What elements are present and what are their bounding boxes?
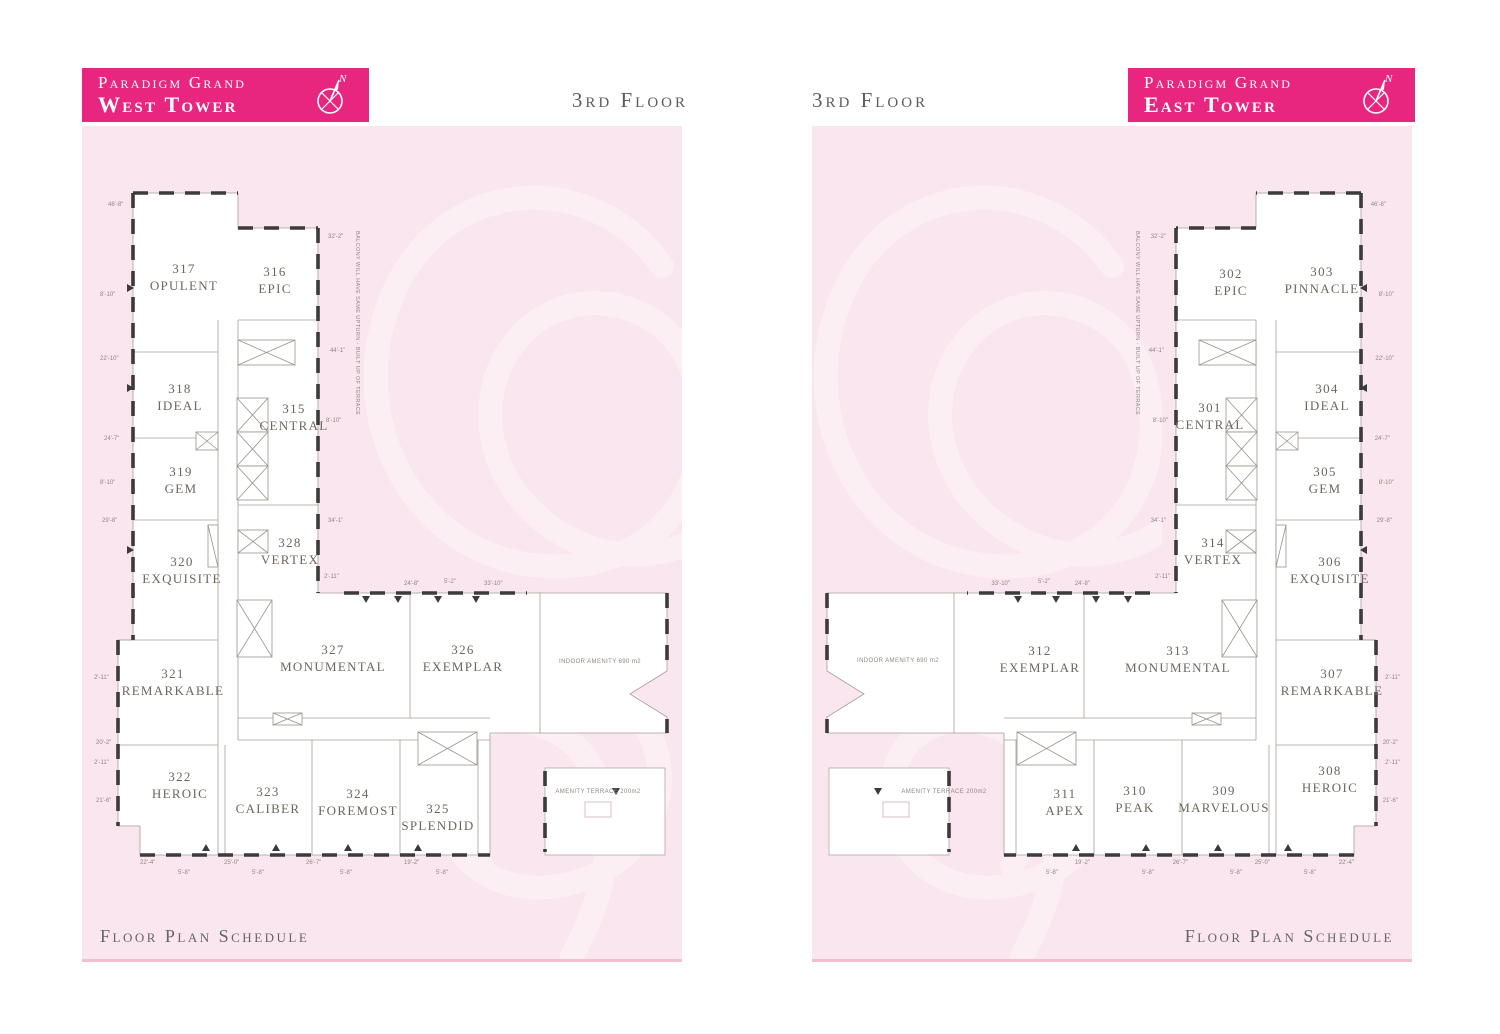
amenity-terrace-label: AMENITY TERRACE 200m2 — [901, 789, 986, 795]
dimension-label: 24'-8" — [1075, 581, 1090, 587]
compass-north-icon: N — [311, 71, 353, 119]
unit-label-303: 303PINNACLE — [1285, 264, 1360, 298]
dimension-label: 21'-6" — [96, 798, 111, 804]
unit-label-314: 314VERTEX — [1184, 535, 1242, 569]
dimension-label: 20'-2" — [96, 740, 111, 746]
east-tower-title: East Tower — [1144, 92, 1292, 117]
floor-label-west: 3rd Floor — [498, 88, 688, 113]
dimension-label: 19'-2" — [1075, 860, 1090, 866]
compass-north-icon: N — [1357, 71, 1399, 119]
balcony-note: BALCONY WILL HAVE SAME UPTURN - BUILT UP… — [1134, 231, 1140, 415]
floor-label-east: 3rd Floor — [812, 88, 1002, 113]
east-tower-header: Paradigm Grand East Tower N — [1128, 68, 1415, 122]
dimension-label: 25'-0" — [224, 860, 239, 866]
unit-label-327: 327MONUMENTAL — [280, 642, 386, 676]
dimension-label: 21'-6" — [1383, 798, 1398, 804]
dimension-label: 34'-1" — [1151, 518, 1166, 524]
unit-label-324: 324FOREMOST — [318, 786, 398, 820]
dimension-label: 25'-0" — [1255, 860, 1270, 866]
dimension-label: 5'-8" — [1304, 870, 1316, 876]
dimension-label: 29'-8" — [1377, 518, 1392, 524]
dimension-label: 24'-8" — [404, 581, 419, 587]
unit-label-307: 307REMARKABLE — [1281, 666, 1384, 700]
dimension-label: 46'-8" — [108, 202, 123, 208]
unit-label-320: 320EXQUISITE — [142, 554, 222, 588]
floor-plan-schedule-label: Floor Plan Schedule — [100, 926, 309, 947]
dimension-label: 24'-7" — [104, 436, 119, 442]
brand-name: Paradigm Grand — [98, 73, 246, 93]
svg-text:N: N — [1384, 73, 1393, 85]
unit-label-302: 302EPIC — [1214, 266, 1247, 300]
unit-label-301: 301CENTRAL — [1175, 400, 1244, 434]
unit-label-308: 308HEROIC — [1302, 763, 1358, 797]
dimension-label: 5'-8" — [252, 870, 264, 876]
west-tower-header: Paradigm Grand West Tower N — [82, 68, 369, 122]
svg-text:N: N — [338, 73, 347, 85]
unit-label-313: 313MONUMENTAL — [1125, 643, 1231, 677]
unit-label-318: 318IDEAL — [157, 381, 203, 415]
indoor-amenity-label: INDOOR AMENITY 690 m2 — [857, 658, 939, 664]
unit-label-325: 325SPLENDID — [401, 801, 474, 835]
unit-label-317: 317OPULENT — [150, 261, 218, 295]
dimension-label: 5'-8" — [1046, 870, 1058, 876]
unit-label-311: 311APEX — [1045, 786, 1084, 820]
unit-label-304: 304IDEAL — [1304, 381, 1350, 415]
dimension-label: 44'-1" — [1149, 348, 1164, 354]
dimension-label: 20'-2" — [1383, 740, 1398, 746]
dimension-label: 8'-10" — [1379, 292, 1394, 298]
unit-label-310: 310PEAK — [1115, 783, 1154, 817]
dimension-label: 22'-10" — [1375, 356, 1394, 362]
dimension-label: 5'-2" — [444, 579, 456, 585]
east-tower-panel: 302EPIC 303PINNACLE 301CENTRAL 304IDEAL … — [812, 126, 1412, 962]
west-floor-plan-drawing — [82, 126, 682, 962]
unit-label-326: 326EXEMPLAR — [423, 642, 503, 676]
dimension-label: 8'-10" — [100, 292, 115, 298]
dimension-label: 2'-11" — [1385, 760, 1400, 766]
unit-label-322: 322HEROIC — [152, 769, 208, 803]
dimension-label: 33'-10" — [484, 581, 503, 587]
dimension-label: 2'-11" — [1155, 574, 1170, 580]
unit-label-315: 315CENTRAL — [259, 401, 328, 435]
dimension-label: 5'-8" — [340, 870, 352, 876]
unit-label-316: 316EPIC — [258, 264, 291, 298]
west-tower-panel: 317OPULENT 316EPIC 318IDEAL 315CENTRAL 3… — [82, 126, 682, 962]
dimension-label: 5'-8" — [1142, 870, 1154, 876]
floor-plan-schedule-label: Floor Plan Schedule — [1185, 926, 1394, 947]
dimension-label: 19'-2" — [404, 860, 419, 866]
dimension-label: 8'-10" — [1379, 480, 1394, 486]
brand-name: Paradigm Grand — [1144, 73, 1292, 93]
unit-label-319: 319GEM — [165, 464, 198, 498]
dimension-label: 5'-8" — [1230, 870, 1242, 876]
dimension-label: 22'-4" — [140, 860, 155, 866]
dimension-label: 24'-7" — [1375, 436, 1390, 442]
dimension-label: 5'-8" — [178, 870, 190, 876]
unit-label-305: 305GEM — [1309, 464, 1342, 498]
dimension-label: 8'-10" — [1153, 418, 1168, 424]
balcony-note: BALCONY WILL HAVE SAME UPTURN - BUILT UP… — [354, 231, 360, 415]
dimension-label: 2'-11" — [1385, 675, 1400, 681]
dimension-label: 26'-7" — [306, 860, 321, 866]
dimension-label: 29'-8" — [102, 518, 117, 524]
dimension-label: 22'-10" — [100, 356, 119, 362]
dimension-label: 8'-10" — [326, 418, 341, 424]
floor-plan-page: 3rd Floor 3rd Floor Paradigm Grand West … — [0, 0, 1500, 1034]
dimension-label: 2'-11" — [324, 574, 339, 580]
dimension-label: 2'-11" — [94, 760, 109, 766]
dimension-label: 2'-11" — [94, 675, 109, 681]
dimension-label: 46'-8" — [1371, 202, 1386, 208]
unit-label-312: 312EXEMPLAR — [1000, 643, 1080, 677]
dimension-label: 5'-8" — [436, 870, 448, 876]
dimension-label: 26'-7" — [1173, 860, 1188, 866]
west-tower-title: West Tower — [98, 92, 246, 117]
dimension-label: 33'-10" — [991, 581, 1010, 587]
dimension-label: 32'-2" — [328, 234, 343, 240]
dimension-label: 8'-10" — [100, 480, 115, 486]
east-floor-plan-drawing — [812, 126, 1412, 962]
dimension-label: 5'-2" — [1038, 579, 1050, 585]
dimension-label: 44'-1" — [330, 348, 345, 354]
unit-label-309: 309MARVELOUS — [1178, 783, 1270, 817]
indoor-amenity-label: INDOOR AMENITY 690 m2 — [559, 659, 641, 665]
amenity-terrace-label: AMENITY TERRACE 200m2 — [555, 789, 640, 795]
dimension-label: 32'-2" — [1151, 234, 1166, 240]
unit-label-323: 323CALIBER — [236, 784, 301, 818]
dimension-label: 34'-1" — [328, 518, 343, 524]
dimension-label: 22'-4" — [1339, 860, 1354, 866]
unit-label-306: 306EXQUISITE — [1290, 554, 1370, 588]
unit-label-321: 321REMARKABLE — [122, 666, 225, 700]
unit-label-328: 328VERTEX — [261, 535, 319, 569]
